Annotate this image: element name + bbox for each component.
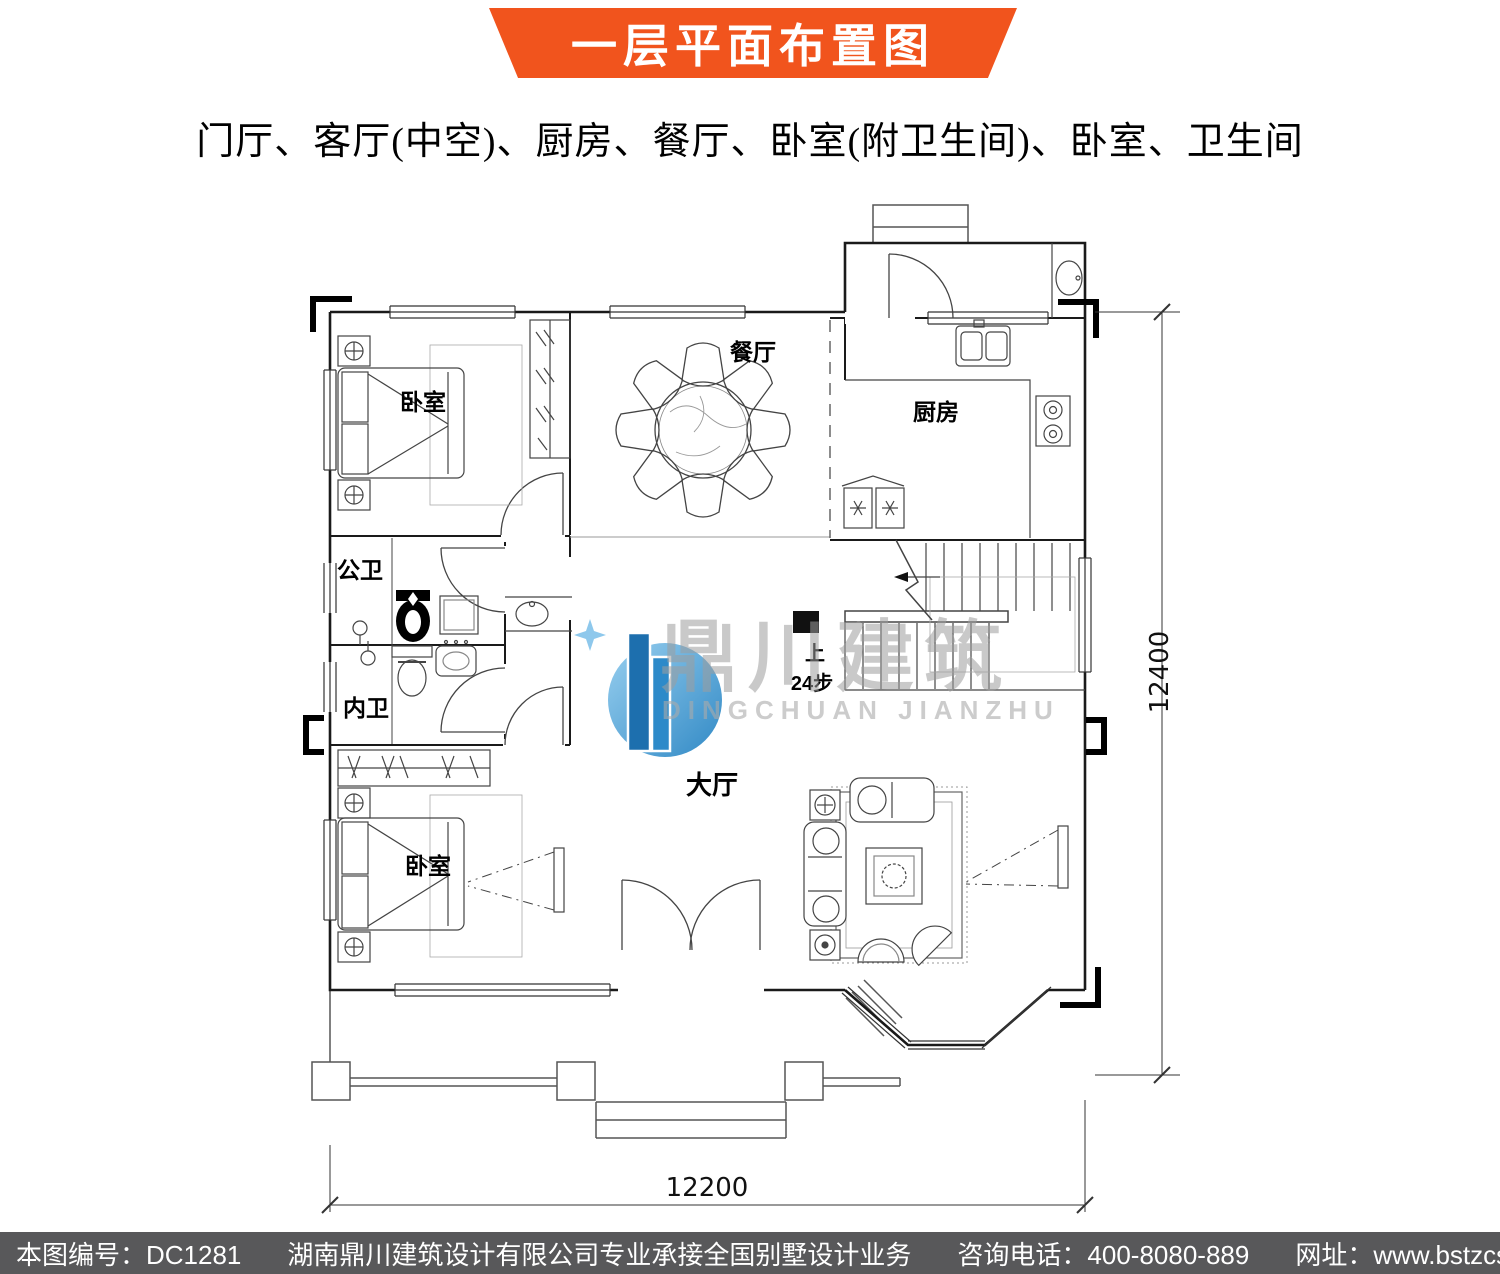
phone-number: 咨询电话：400-8080-889 xyxy=(957,1235,1249,1272)
company-name: 湖南鼎川建筑设计有限公司专业承接全国别墅设计业务 xyxy=(287,1235,911,1272)
bedroom2-furniture xyxy=(338,750,564,962)
room-label-bedroom-2: 卧室 xyxy=(405,853,451,879)
bedroom1-furniture xyxy=(338,320,570,510)
website-url: 网址：www.bstzcs.com xyxy=(1295,1235,1500,1272)
dining-furniture xyxy=(616,343,790,517)
windows xyxy=(324,306,1091,1049)
page: { "banner": {"title": "一层平面布置图", "color"… xyxy=(0,0,1500,1274)
dimension-right: 12400 xyxy=(1145,631,1175,714)
staircase xyxy=(845,540,1085,690)
drawing-number: 本图编号：DC1281 xyxy=(16,1235,241,1272)
kitchen-furniture xyxy=(842,243,1082,538)
dimension-bottom: 12200 xyxy=(666,1173,749,1203)
room-label-public-bath: 公卫 xyxy=(337,557,383,583)
dimension-lines xyxy=(322,304,1180,1213)
dining-chairs xyxy=(616,343,790,517)
room-label-bedroom-1: 卧室 xyxy=(400,389,446,415)
floor-plan-drawing: 上 24步 xyxy=(0,0,1500,1274)
room-label-kitchen: 厨房 xyxy=(913,399,959,425)
room-label-hall: 大厅 xyxy=(686,770,738,800)
room-label-private-bath: 内卫 xyxy=(343,695,389,721)
room-label-dining: 餐厅 xyxy=(730,339,776,365)
inner-walls xyxy=(330,312,1085,745)
front-porch xyxy=(312,205,968,1138)
stairs-up-label: 上 xyxy=(805,642,825,665)
boundary-lines xyxy=(570,320,830,538)
hall-column xyxy=(793,611,819,633)
doors xyxy=(441,254,953,950)
footer-bar: 本图编号：DC1281 湖南鼎川建筑设计有限公司专业承接全国别墅设计业务 咨询电… xyxy=(0,1232,1500,1274)
living-furniture xyxy=(804,778,1068,965)
stairs-steps-label: 24步 xyxy=(791,672,833,695)
